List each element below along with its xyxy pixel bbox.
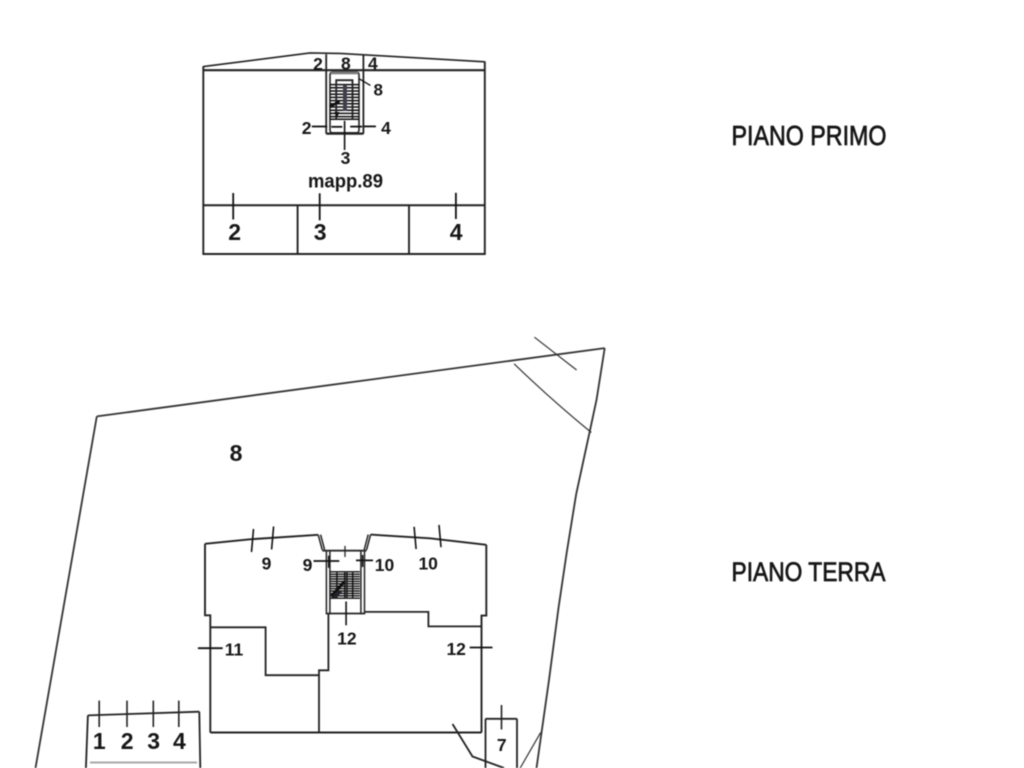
svg-text:2: 2 <box>302 118 312 138</box>
svg-text:4: 4 <box>173 728 186 754</box>
svg-text:8: 8 <box>230 440 243 466</box>
svg-text:12: 12 <box>446 639 466 659</box>
svg-text:3: 3 <box>147 728 160 754</box>
svg-text:10: 10 <box>375 555 395 575</box>
svg-text:4: 4 <box>450 219 463 245</box>
svg-text:PIANO PRIMO: PIANO PRIMO <box>732 120 887 151</box>
svg-text:3: 3 <box>314 219 327 245</box>
svg-text:11: 11 <box>225 640 244 660</box>
svg-text:12: 12 <box>337 629 357 649</box>
svg-text:7: 7 <box>497 735 507 755</box>
svg-text:10: 10 <box>418 553 438 573</box>
svg-text:9: 9 <box>303 555 313 575</box>
svg-text:8: 8 <box>373 81 382 100</box>
svg-text:9: 9 <box>262 554 272 574</box>
svg-text:PIANO TERRA: PIANO TERRA <box>732 557 886 587</box>
svg-text:2: 2 <box>313 54 323 74</box>
svg-text:2: 2 <box>121 728 134 754</box>
svg-text:4: 4 <box>381 118 391 138</box>
svg-text:8: 8 <box>341 54 351 74</box>
svg-text:3: 3 <box>341 148 351 168</box>
svg-text:mapp.89: mapp.89 <box>308 170 383 192</box>
svg-text:4: 4 <box>368 54 378 74</box>
svg-text:2: 2 <box>228 219 241 245</box>
svg-text:1: 1 <box>93 728 106 754</box>
